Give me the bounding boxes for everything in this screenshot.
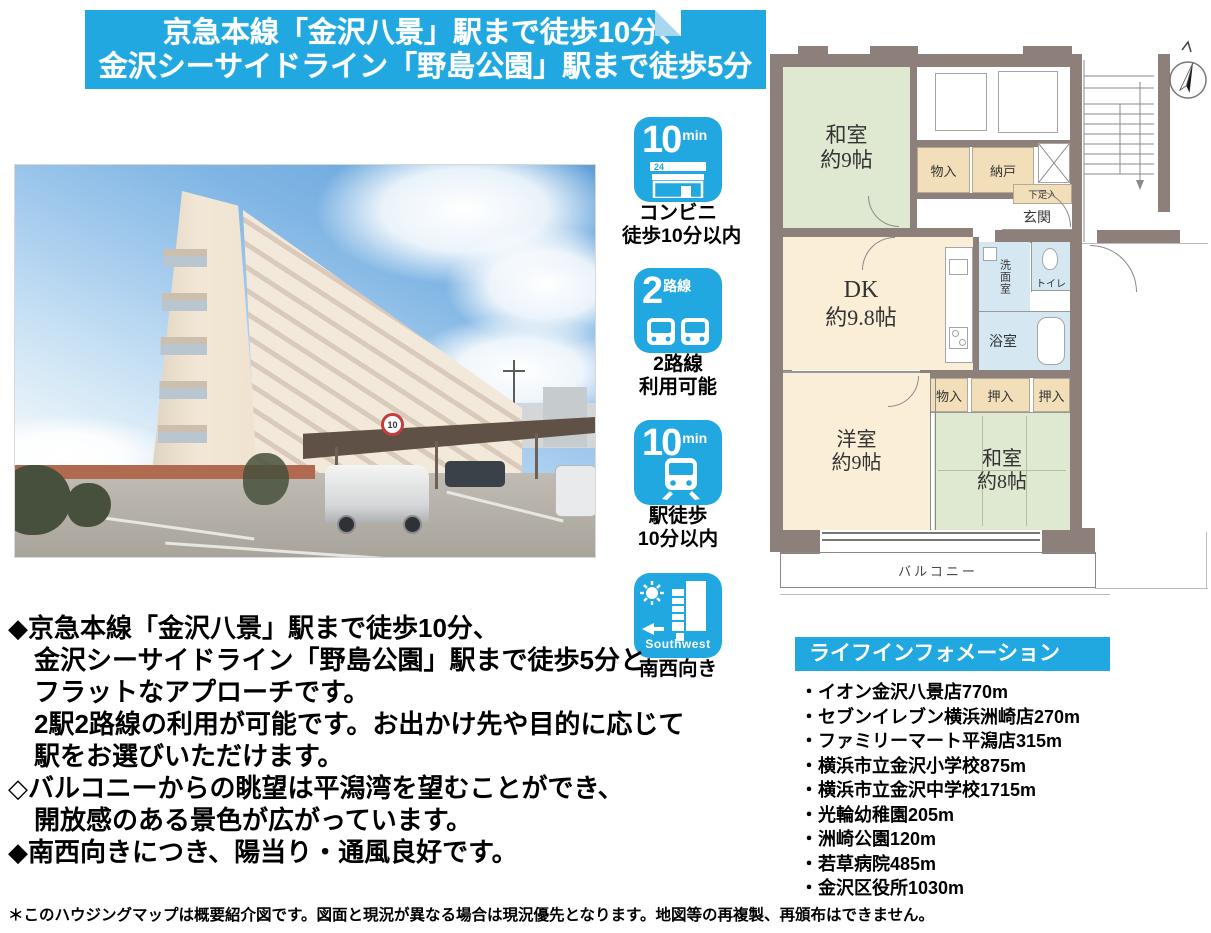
sliding-door-line <box>783 371 920 373</box>
life-info-list: ・イオン金沢八景店770m ・セブンイレブン横浜洲崎店270m ・ファミリーマー… <box>800 680 1200 901</box>
speed-limit-value: 10 <box>387 420 397 430</box>
closet-oshiire-left: 押入 <box>971 378 1030 412</box>
feature-caption: 2路線 <box>622 353 734 376</box>
stove-burner <box>959 339 966 346</box>
trains-glyph <box>645 317 711 349</box>
van-wheel <box>337 515 356 534</box>
life-info-item: ・横浜市立金沢中学校1715m <box>800 778 1200 803</box>
description-line: ◆南西向きにつき、陽当り・通風良好です。 <box>8 836 648 868</box>
room-label: 物入 <box>936 386 962 405</box>
badge-unit: min <box>682 431 707 445</box>
bathtub <box>1037 317 1065 365</box>
room-size: 約9.8帖 <box>825 305 897 330</box>
feature-two-lines: 2 路線 2路線 利用可能 <box>622 268 734 399</box>
description-line: フラットなアプローチです。 <box>8 676 648 708</box>
two-trains-icon: 2 路線 <box>634 268 722 353</box>
description-line: 2駅2路線の利用が可能です。お出かけ先や目的に応じて <box>8 708 648 740</box>
room-label: 押入 <box>987 386 1013 405</box>
life-info-item: ・横浜市立金沢小学校875m <box>800 754 1200 779</box>
feature-station-walk: 10 min 駅徒歩 10分以内 <box>622 420 734 551</box>
room-japanese-8: 和室 約8帖 <box>934 412 1070 530</box>
room-label: 和室 <box>982 448 1022 470</box>
life-info-item: ・ファミリーマート平潟店315m <box>800 729 1200 754</box>
floorplan-line <box>1032 290 1070 291</box>
room-label: 浴室 <box>989 331 1017 351</box>
wall-segment <box>920 370 1080 378</box>
distant-building <box>543 387 587 447</box>
room-label: 納戸 <box>990 161 1016 180</box>
life-info-item: ・イオン金沢八景店770m <box>800 680 1200 705</box>
store-24-sign: 24 <box>654 162 664 172</box>
room-size: 約9帖 <box>832 452 882 474</box>
floorplan-line <box>1031 242 1032 292</box>
room-label: 物入 <box>930 161 956 180</box>
life-info-item: ・若草病院485m <box>800 852 1200 877</box>
balcony: バルコニー <box>780 552 1096 588</box>
life-info-item: ・金沢区役所1030m <box>800 876 1200 901</box>
carport-post <box>535 433 538 479</box>
feature-badge: 10 min <box>642 119 707 161</box>
wall-pillar <box>1042 528 1095 554</box>
toilet-bowl <box>1042 248 1058 270</box>
badge-unit: 路線 <box>663 279 691 293</box>
train-icon: 10 min <box>634 420 722 505</box>
corridor-line <box>1082 243 1208 244</box>
description-line: 金沢シーサイドライン「野島公園」駅まで徒歩5分と <box>8 644 648 676</box>
flyer-page: 京急本線「金沢八景」駅まで徒歩10分、 金沢シーサイドライン「野島公園」駅まで徒… <box>0 0 1211 933</box>
floor-plan: 和室 約9帖 物入 納戸 下足入 玄関 DK 約9.8帖 洗面室 トイレ <box>770 40 1211 615</box>
shaft-x <box>1039 144 1069 182</box>
staircase <box>1082 54 1158 244</box>
ledge-line <box>1095 588 1208 589</box>
sliding-partition <box>930 378 936 530</box>
carport-post <box>435 441 438 489</box>
life-info-item: ・光輪幼稚園205m <box>800 803 1200 828</box>
description-line: 駅をお選びいただけます。 <box>8 740 648 772</box>
feature-caption: 徒歩10分以内 <box>622 225 734 248</box>
room-label: DK <box>844 277 879 303</box>
balcony-rail-line <box>780 594 1110 595</box>
convenience-store-icon: 10 min 24 <box>634 117 722 202</box>
room-label: 和室 <box>826 123 868 147</box>
badge-number: 10 <box>642 119 680 161</box>
van-wheel <box>403 515 422 534</box>
wall-segment <box>1070 54 1082 530</box>
ledge-line <box>1206 532 1207 589</box>
banner-corner-fold <box>655 10 681 36</box>
adjacent-room-outline <box>935 73 987 131</box>
door-arc <box>1090 245 1137 292</box>
closet-monoire-top: 物入 <box>917 147 970 193</box>
speed-limit-sign: 10 <box>381 413 404 436</box>
life-info-title: ライフインフォメーション <box>795 637 1110 671</box>
room-size: 約9帖 <box>820 148 873 172</box>
utility-pole-crossarm <box>503 370 525 372</box>
compass-north-icon <box>1166 40 1210 106</box>
description-line: ◆京急本線「金沢八景」駅まで徒歩10分、 <box>8 612 648 644</box>
headline-line2: 金沢シーサイドライン「野島公園」駅まで徒歩5分 <box>99 50 753 84</box>
description: ◆京急本線「金沢八景」駅まで徒歩10分、 金沢シーサイドライン「野島公園」駅まで… <box>8 612 648 868</box>
room-label: 洋室 <box>837 429 877 451</box>
room-label: 洗面室 <box>997 259 1013 295</box>
room-size: 約8帖 <box>977 471 1027 493</box>
badge-unit: min <box>682 128 707 142</box>
stove-burner <box>952 330 959 337</box>
train-glyph <box>658 457 704 501</box>
entrance-step-line <box>1002 229 1072 230</box>
room-label: バルコニー <box>898 561 978 580</box>
kitchen-sink <box>949 259 968 275</box>
store-glyph: 24 <box>647 162 709 198</box>
shaft-box <box>1038 143 1070 183</box>
feature-badge: 2 路線 <box>642 270 691 312</box>
wall-segment <box>910 67 917 228</box>
feature-caption: コンビニ <box>622 202 734 225</box>
footnote: ＊このハウジングマップは概要紹介図です。図面と現況が異なる場合は現況優先となりま… <box>8 903 934 925</box>
headline-line1: 京急本線「金沢八景」駅まで徒歩10分、 <box>163 16 688 50</box>
description-line: 開放感のある景色が広がっています。 <box>8 804 648 836</box>
wall-segment <box>910 193 1013 199</box>
parked-car-dark <box>445 461 505 487</box>
wall-segment <box>783 228 973 237</box>
wall-pillar <box>780 528 820 554</box>
life-info-item: ・セブンイレブン横浜洲崎店270m <box>800 705 1200 730</box>
adjacent-room-outline <box>998 71 1058 133</box>
feature-convenience: 10 min 24 コンビニ 徒歩10分以内 <box>622 117 734 248</box>
description-line: ◇バルコニーからの眺望は平潟湾を望むことができ、 <box>8 772 648 804</box>
feature-caption: 10分以内 <box>622 528 734 551</box>
room-label: 押入 <box>1038 386 1064 405</box>
washbasin <box>983 247 997 261</box>
feature-caption: 駅徒歩 <box>622 505 734 528</box>
wall-segment <box>770 54 783 552</box>
room-label: トイレ <box>1036 275 1066 290</box>
badge-number: 2 <box>642 270 661 312</box>
life-info-item: ・洲崎公園120m <box>800 827 1200 852</box>
building-photo: 10 <box>14 164 596 558</box>
closet-oshiire-right: 押入 <box>1033 378 1070 412</box>
floorplan-line <box>930 412 1070 413</box>
floorplan-line <box>979 311 1070 312</box>
parked-truck <box>555 465 596 517</box>
feature-caption: 利用可能 <box>622 376 734 399</box>
balcony-window-strip <box>822 532 1040 541</box>
